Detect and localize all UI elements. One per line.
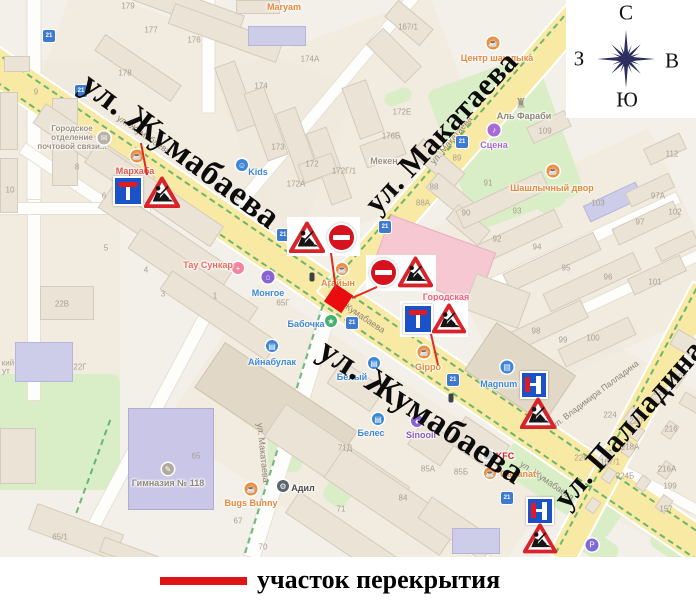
building-number: 179: [121, 2, 134, 11]
building-number: 71Д: [338, 444, 352, 453]
bus-stop-badge: 21: [345, 316, 359, 330]
compass-south-label: Ю: [616, 88, 638, 113]
poi-bugs-bunny: Bugs Bunny: [225, 498, 278, 508]
food-icon: ☕: [547, 165, 560, 178]
map-building: [452, 528, 500, 554]
building-number: 103: [591, 199, 604, 208]
building-number: 99: [559, 336, 568, 345]
poi-beles: Белес: [358, 428, 385, 438]
map-building: [248, 26, 306, 46]
closure-legend-label: участок перекрытия: [257, 565, 500, 595]
building-number: 9: [34, 88, 38, 97]
poi-post-office: Городское отделение почтовой связи...: [37, 124, 106, 152]
building-number: 216А: [658, 465, 677, 474]
roadworks-sign-icon: [523, 523, 557, 554]
building-number: 85А: [421, 465, 435, 474]
building-number: 65Г: [276, 299, 289, 308]
compass-east-label: В: [665, 49, 679, 74]
building-number: 92: [493, 235, 502, 244]
building-number: 96: [604, 273, 613, 282]
building-number: 67: [234, 517, 243, 526]
bus-stop-badge: 21: [378, 220, 392, 234]
roadworks-sign-icon: [144, 176, 180, 208]
building-number: 84: [399, 494, 408, 503]
microphone-icon: ♪: [488, 124, 501, 137]
map-building: [0, 428, 36, 484]
no-entry-sign-icon: [369, 258, 398, 287]
compass-west-label: З: [574, 47, 585, 72]
building-number: 174: [254, 82, 267, 91]
building-number: 5: [104, 244, 108, 253]
building-number: 178: [118, 69, 131, 78]
compass-rose: С Ю З В: [566, 0, 696, 118]
building-number: 1: [213, 292, 217, 301]
map-legend: участок перекрытия: [0, 557, 696, 603]
building-number: 173: [271, 143, 284, 152]
building-number: 3: [161, 290, 165, 299]
building-number: 174А: [301, 55, 320, 64]
map-building: [128, 408, 214, 510]
roadworks-sign-icon: [289, 221, 325, 253]
poi-kids: Kids: [248, 167, 268, 177]
parking-icon: P: [586, 539, 599, 552]
building-number: 172Е: [393, 108, 412, 117]
roadworks-sign-icon: [398, 256, 433, 288]
building-number: 10: [6, 186, 15, 195]
dead-end-left-sign-icon: [526, 497, 554, 525]
supermarket-icon: ☕: [418, 346, 431, 359]
building-number: 199: [663, 482, 676, 491]
poi-shashlychnyi-dvor: Шашлычный двор: [510, 183, 593, 193]
building-number: 88: [430, 183, 439, 192]
building-number: 112: [666, 150, 679, 159]
dead-end-sign-icon: [403, 304, 433, 334]
food-icon: ☕: [131, 150, 144, 163]
compass-star-icon: [596, 29, 656, 89]
traffic-light-icon: [449, 394, 454, 403]
shop-icon: ▤: [372, 413, 384, 425]
no-entry-sign-icon: [327, 223, 356, 252]
cafe-icon: ☕: [245, 483, 258, 496]
building-number: ут: [2, 367, 10, 376]
building-number: 172А: [287, 180, 306, 189]
building-number: 101: [648, 278, 661, 287]
building-number: 95: [562, 264, 571, 273]
building-number: 98: [532, 327, 541, 336]
dead-end-left-sign-icon: [520, 371, 548, 399]
map-building: [4, 56, 30, 72]
building-number: 85Б: [454, 468, 468, 477]
restaurant-icon: ☕: [336, 263, 348, 275]
building-number: 88А: [416, 199, 430, 208]
building-number: 100: [586, 334, 599, 343]
map-building: [99, 537, 159, 557]
poi-maryam: Maryam: [267, 2, 301, 12]
building-number: 216: [664, 425, 677, 434]
building-number: 109: [538, 127, 551, 136]
compass-north-label: С: [619, 1, 633, 26]
shop-icon: ▤: [266, 340, 278, 352]
monument-icon: ♜: [515, 97, 528, 110]
building-number: 224Б: [616, 472, 635, 481]
building-number: 90: [462, 209, 471, 218]
building-number: 97А: [651, 192, 665, 201]
building-number: 22Г: [73, 363, 86, 372]
building-number: 6: [102, 192, 106, 201]
star-icon: ★: [325, 315, 337, 327]
services-icon: ⚙: [277, 480, 289, 492]
building-number: 97: [636, 218, 645, 227]
poi-babochka: Бабочка: [287, 319, 324, 329]
building-number: 91: [484, 179, 493, 188]
building-number: 93: [513, 207, 522, 216]
bus-stop-badge: 21: [42, 29, 56, 43]
roadworks-sign-icon: [520, 397, 556, 429]
poi-adil: Адил: [291, 483, 314, 493]
building-number: 167/1: [398, 23, 418, 32]
building-number: 102: [668, 208, 681, 217]
map-building: [0, 92, 18, 150]
medical-icon: +: [232, 262, 244, 274]
building-number: 176: [187, 36, 200, 45]
map-building: [15, 342, 73, 382]
dead-end-sign-icon: [113, 176, 143, 206]
building-number: 22В: [55, 300, 69, 309]
building-number: 89: [453, 154, 462, 163]
closure-legend-swatch: [160, 577, 247, 585]
building-number: 65: [192, 452, 201, 461]
shop-icon: ▤: [501, 361, 514, 374]
building-number: 4: [144, 266, 148, 275]
building-number: 157: [659, 505, 672, 514]
building-number: 172Г/1: [332, 167, 356, 176]
bus-stop-badge: 21: [500, 491, 514, 505]
poi-ainabulak: Айнабулак: [248, 357, 296, 367]
building-number: 71: [337, 505, 346, 514]
building-number: 70: [259, 543, 268, 552]
traffic-light-icon: [310, 273, 315, 282]
poi-al-farabi: Аль Фараби: [497, 111, 552, 121]
building-number: 94: [533, 243, 542, 252]
roadworks-sign-icon: [432, 303, 466, 334]
poi-mongoe: Монгое: [252, 288, 285, 298]
bus-stop-badge: 21: [446, 373, 460, 387]
building-number: 65/1: [52, 533, 68, 542]
poi-marhaba: Мархаба: [116, 166, 155, 176]
building-number: 172: [305, 160, 318, 169]
poi-tau-sunkar: Тау Сункар: [183, 260, 233, 270]
annotated-map-image: 179177176178981062А543122В22Гкийут65/165…: [0, 0, 696, 603]
poi-gippo: Gippo: [415, 362, 441, 372]
school-icon: ✎: [162, 463, 174, 475]
building-number: 176Б: [382, 132, 401, 141]
poi-gymnasium-118: Гимназия № 118: [132, 478, 204, 488]
building-number: 177: [144, 26, 157, 35]
poi-magnum: Magnum S: [480, 379, 526, 389]
building-number: 8: [75, 163, 79, 172]
poi-scena: Сцена: [480, 140, 507, 150]
hotel-icon: ⌂: [262, 271, 275, 284]
